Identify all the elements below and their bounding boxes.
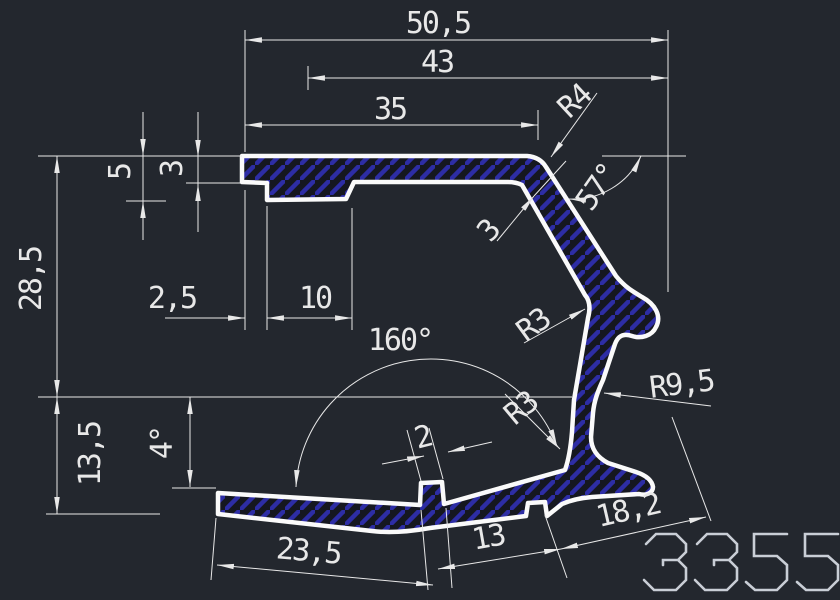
dim-r9-5-label: R9,5: [647, 363, 715, 406]
extension-line: [545, 515, 567, 578]
cad-drawing-canvas: 50,5 43 35 R4 5 3 57° 28,5 2,5 10 160° 3…: [0, 0, 840, 600]
part-number: [644, 534, 838, 590]
dim-35-label: 35: [374, 92, 406, 127]
part-number-digit: [746, 534, 787, 590]
dimension-arrow-stub: [448, 442, 492, 452]
dimension-arrow-stub: [382, 456, 424, 464]
dim-43-label: 43: [421, 45, 453, 80]
dim-5-label: 5: [103, 164, 138, 180]
dim-r3-upper-label: R3: [510, 302, 557, 349]
dim-r3-lower-label: R3: [498, 385, 545, 432]
profile-drawing: 50,5 43 35 R4 5 3 57° 28,5 2,5 10 160° 3…: [0, 0, 840, 600]
dim-wall-3-label: 3: [470, 213, 507, 248]
dim-2-5-label: 2,5: [148, 281, 196, 316]
dim-160deg-label: 160°: [368, 323, 432, 358]
extension-line: [672, 417, 711, 521]
dim-10-label: 10: [299, 281, 332, 316]
dim-4deg-label: 4°: [145, 427, 180, 459]
dim-r4-label: R4: [551, 77, 599, 125]
part-number-digit: [797, 534, 838, 590]
dim-3-label: 3: [155, 161, 190, 177]
dim-23-5-label: 23,5: [275, 531, 342, 571]
dim-overall-width-label: 50,5: [406, 6, 470, 41]
dim-13-5-label: 13,5: [73, 422, 108, 486]
dim-13-label: 13: [469, 518, 507, 558]
part-number-digit: [695, 534, 737, 590]
part-number-digit: [644, 534, 686, 590]
dim-57deg-label: 57°: [569, 158, 625, 218]
dim-28-5-label: 28,5: [14, 247, 49, 311]
extension-line: [211, 518, 216, 580]
